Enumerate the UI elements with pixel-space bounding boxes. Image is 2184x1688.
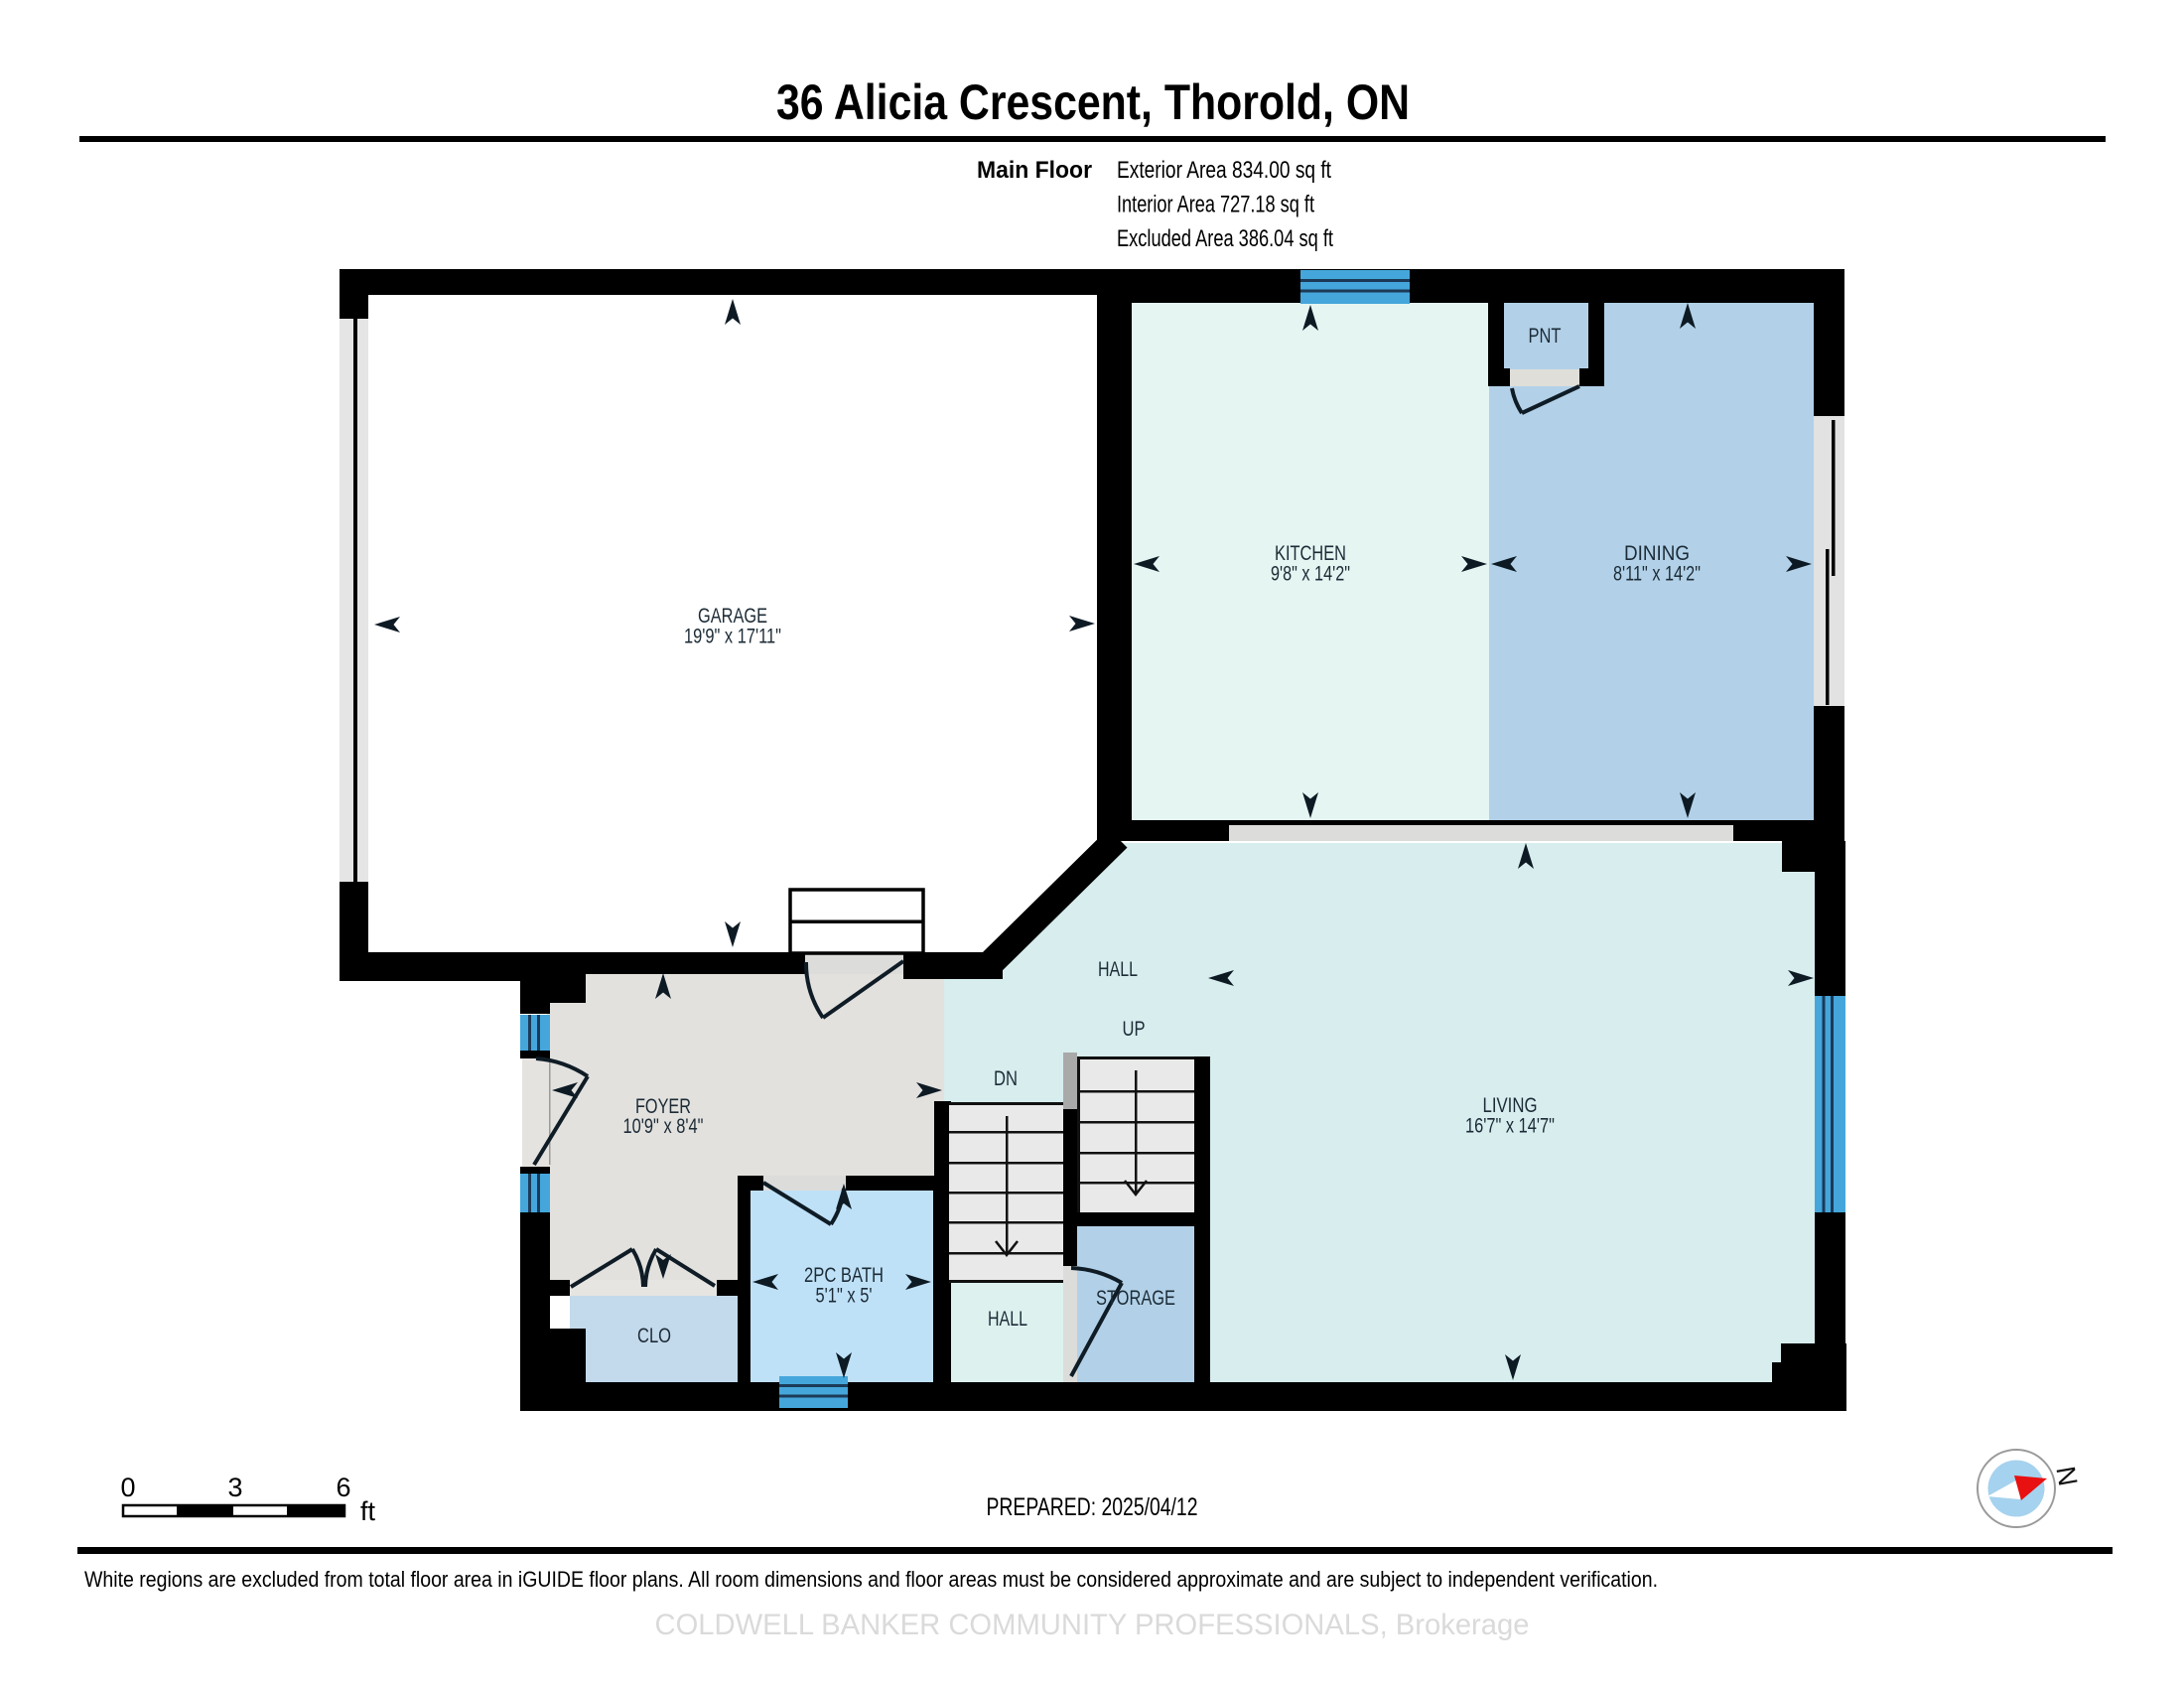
svg-text:Exterior Area 834.00 sq ft: Exterior Area 834.00 sq ft bbox=[1117, 157, 1331, 184]
svg-text:HALL: HALL bbox=[988, 1307, 1027, 1331]
svg-text:DN: DN bbox=[994, 1066, 1018, 1090]
svg-text:16'7" x 14'7": 16'7" x 14'7" bbox=[1465, 1114, 1555, 1138]
svg-text:STORAGE: STORAGE bbox=[1096, 1286, 1175, 1310]
svg-text:UP: UP bbox=[1123, 1017, 1146, 1041]
svg-text:Interior Area 727.18 sq ft: Interior Area 727.18 sq ft bbox=[1117, 192, 1314, 218]
svg-text:CLO: CLO bbox=[637, 1324, 671, 1347]
svg-text:8'11" x 14'2": 8'11" x 14'2" bbox=[1613, 562, 1701, 586]
svg-text:36 Alicia Crescent, Thorold, O: 36 Alicia Crescent, Thorold, ON bbox=[776, 74, 1410, 130]
svg-text:White regions are excluded fro: White regions are excluded from total fl… bbox=[84, 1567, 1658, 1592]
svg-text:Excluded Area 386.04 sq ft: Excluded Area 386.04 sq ft bbox=[1117, 225, 1333, 252]
svg-text:0: 0 bbox=[120, 1473, 135, 1502]
svg-text:5'1" x 5': 5'1" x 5' bbox=[816, 1284, 873, 1308]
svg-text:ft: ft bbox=[360, 1496, 376, 1526]
svg-text:PNT: PNT bbox=[1529, 324, 1562, 348]
svg-text:3: 3 bbox=[227, 1473, 242, 1502]
svg-text:COLDWELL BANKER COMMUNITY PROF: COLDWELL BANKER COMMUNITY PROFESSIONALS,… bbox=[655, 1609, 1530, 1641]
svg-text:Main Floor: Main Floor bbox=[977, 157, 1092, 184]
svg-text:10'9" x 8'4": 10'9" x 8'4" bbox=[623, 1114, 704, 1138]
svg-text:PREPARED: 2025/04/12: PREPARED: 2025/04/12 bbox=[987, 1493, 1198, 1521]
svg-text:9'8" x 14'2": 9'8" x 14'2" bbox=[1271, 562, 1350, 586]
svg-text:HALL: HALL bbox=[1098, 957, 1138, 981]
svg-text:6: 6 bbox=[336, 1473, 350, 1502]
svg-text:19'9" x 17'11": 19'9" x 17'11" bbox=[684, 625, 781, 648]
